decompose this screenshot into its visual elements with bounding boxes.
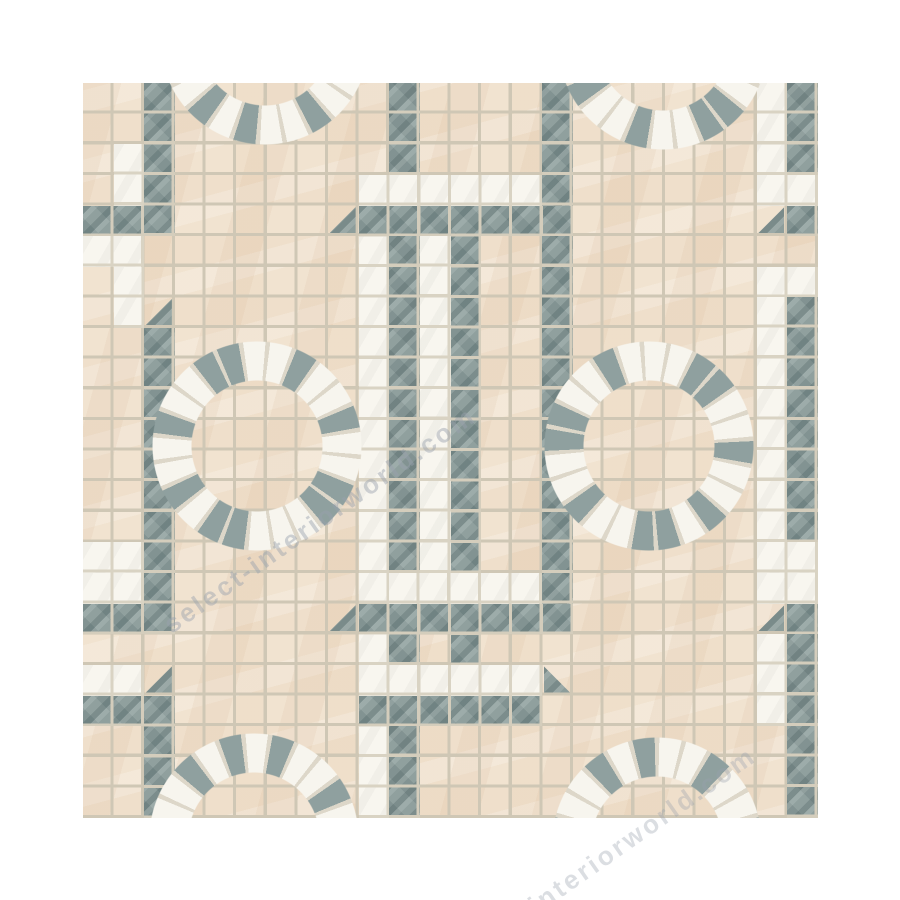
triangle-tile — [330, 207, 356, 233]
tile-run-white — [359, 175, 543, 206]
tile-run-white — [757, 267, 818, 298]
triangle-tile — [544, 666, 570, 692]
tile-run-gray — [359, 696, 543, 727]
tile-run-white — [83, 665, 144, 696]
mosaic-field — [83, 83, 818, 818]
tile-run-gray — [83, 696, 144, 727]
tile-run-white — [83, 573, 144, 604]
tile-run-gray — [83, 206, 144, 237]
mosaic-ring — [544, 341, 754, 551]
tile-run-gray — [359, 604, 573, 635]
triangle-tile — [146, 299, 172, 325]
tile-run-white — [757, 542, 818, 573]
tile-run-gray — [787, 206, 818, 237]
tile-run-white — [389, 573, 542, 604]
tile-run-white — [114, 144, 145, 205]
tile-run-white — [757, 634, 788, 726]
tile-run-white — [757, 83, 788, 175]
triangle-tile — [758, 207, 784, 233]
tile-run-white — [757, 175, 818, 206]
mosaic-ring — [149, 733, 359, 818]
tile-run-gray — [787, 83, 818, 175]
tile-run-white — [757, 297, 788, 573]
triangle-tile — [758, 605, 784, 631]
tile-run-white — [757, 573, 818, 604]
tile-run-gray — [787, 604, 818, 635]
tile-run-gray — [787, 328, 818, 542]
mosaic-ring — [160, 83, 370, 145]
tile-run-gray — [787, 634, 818, 818]
tile-run-gray — [542, 83, 573, 634]
tile-run-white — [114, 267, 145, 328]
tile-run-gray — [83, 604, 144, 635]
tile-run-gray — [359, 206, 573, 237]
tile-run-gray — [787, 297, 818, 328]
tile-run-white — [83, 236, 144, 267]
tile-run-white — [83, 542, 144, 573]
product-photo-mosaic-tile: select-interiorworld.com select-interior… — [0, 0, 900, 900]
tile-run-white — [420, 236, 451, 573]
mosaic-ring — [152, 341, 362, 551]
tile-run-white — [359, 665, 543, 696]
mosaic-ring — [558, 83, 768, 150]
mosaic-ring — [552, 737, 762, 818]
triangle-tile — [146, 666, 172, 692]
triangle-tile — [330, 605, 356, 631]
tile-run-gray — [144, 83, 175, 236]
